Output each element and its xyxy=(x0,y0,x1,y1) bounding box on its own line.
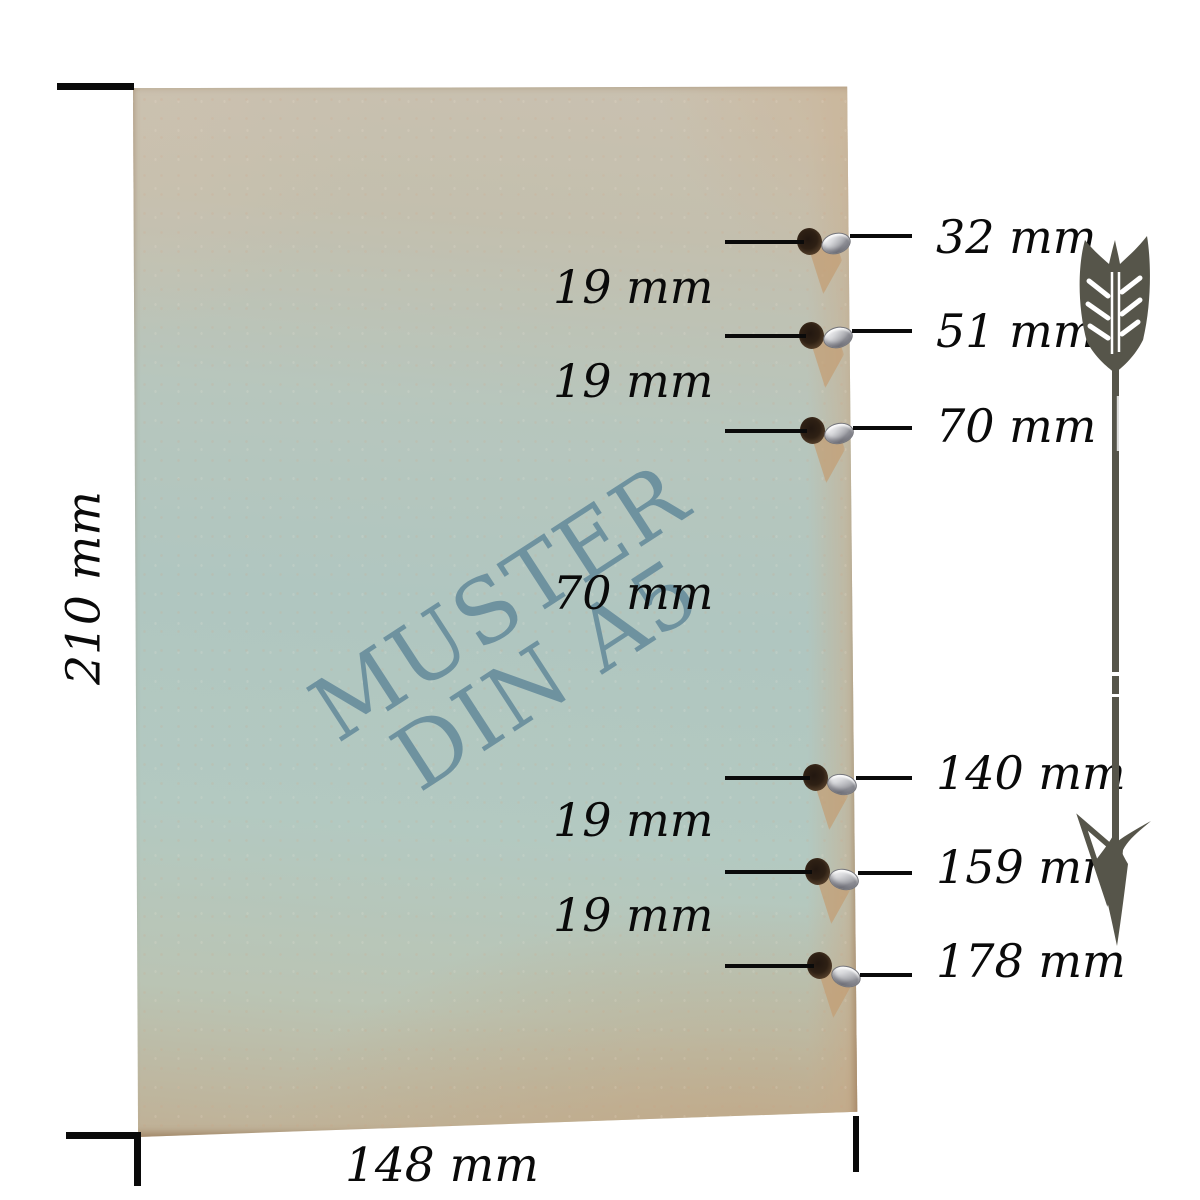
leader-line-right xyxy=(858,871,912,875)
leader-line-left xyxy=(725,964,814,968)
height-dimension-label: 210 mm xyxy=(61,491,108,685)
gap-distance-label: 19 mm xyxy=(553,797,713,843)
leader-line-left xyxy=(725,870,812,874)
gap-distance-label: 19 mm xyxy=(553,358,713,404)
leader-line-right xyxy=(856,776,912,780)
feather-arrow-icon xyxy=(1072,226,1156,950)
leader-line-right xyxy=(853,426,912,430)
product-dimension-diagram: MUSTER DIN A5 32 mm 51 mm 70 mm 140 mm xyxy=(0,0,1200,1200)
gap-distance-label: 70 mm xyxy=(553,570,713,616)
dimension-tick-top xyxy=(57,83,134,90)
leader-line-right xyxy=(850,234,912,238)
dimension-tick-bottom-left xyxy=(66,1132,141,1139)
leader-line-right xyxy=(860,973,912,977)
dimension-tick-bottom-left xyxy=(134,1132,141,1186)
leader-line-left xyxy=(725,429,807,433)
leader-line-right xyxy=(852,329,912,333)
gap-distance-label: 19 mm xyxy=(553,892,713,938)
gap-distance-label: 19 mm xyxy=(553,264,713,310)
leader-line-left xyxy=(725,240,804,244)
leader-line-left xyxy=(725,334,806,338)
cover-watermark: MUSTER DIN A5 xyxy=(241,414,805,864)
leader-line-left xyxy=(725,776,810,780)
width-dimension-label: 148 mm xyxy=(345,1142,539,1189)
dimension-tick-bottom-right xyxy=(853,1116,859,1172)
